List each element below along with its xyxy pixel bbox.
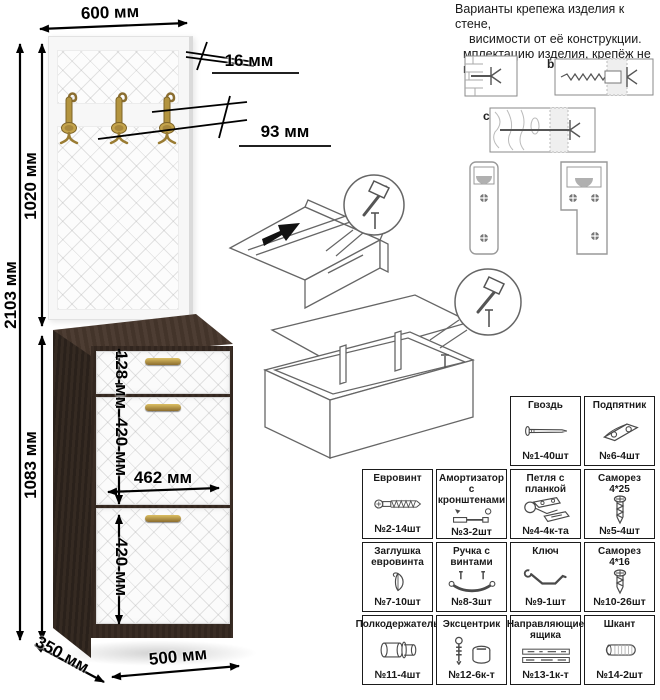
dim-hook-offset: 93 мм — [261, 122, 310, 142]
part-count: №5-4шт — [599, 525, 640, 537]
part-count: №14-2шт — [596, 669, 643, 681]
panel-quilt-lower — [57, 126, 179, 310]
part-name: Евровинт — [373, 473, 421, 484]
mount-option-b: b — [547, 57, 653, 95]
dim-drawer-height: 128 мм — [111, 351, 131, 409]
part-count: №10-26шт — [593, 596, 645, 608]
option-b-label: b — [547, 57, 554, 71]
screw-mark-icon — [480, 194, 488, 202]
part-cell-handle: Ручка с винтами №8-3шт — [436, 542, 507, 612]
drawer-slides-icon — [516, 645, 576, 665]
part-name: Саморез 4*16 — [587, 546, 652, 568]
handle-icon — [442, 569, 502, 595]
note-line: Варианты крепежа изделия к стене, — [455, 2, 659, 32]
part-cell-cam-lock: Эксцентрик №12-6к-т — [436, 615, 507, 685]
part-cell-nail: Гвоздь №1-40шт — [510, 396, 581, 466]
euroscrew-icon — [368, 492, 428, 516]
part-name: Направляющие ящика — [507, 619, 584, 641]
dim-cabinet-height: 1083 мм — [21, 431, 41, 499]
drawer-handle — [145, 358, 181, 365]
foot-plate-icon — [590, 418, 650, 444]
part-name: Заглушка евровинта — [365, 546, 430, 568]
part-count: №6-4шт — [599, 450, 640, 462]
part-count: №9-1шт — [525, 596, 566, 608]
part-cell-gas-strut: Амортизатор с кронштенами №3-2шт — [436, 469, 507, 539]
key-icon — [516, 564, 576, 590]
shelf-support-icon — [368, 637, 428, 663]
screw-mark-icon — [480, 234, 488, 242]
parts-table: Гвоздь №1-40шт Подпятник №6-4шт Евровинт — [362, 396, 655, 685]
mount-option-c: c — [483, 108, 595, 152]
part-count: №4-4к-та — [522, 525, 569, 537]
dim-total-height: 2103 мм — [1, 261, 21, 329]
cabinet-side-panel — [50, 328, 92, 660]
wall-panel — [48, 36, 193, 320]
screw-icon — [603, 495, 637, 525]
wall-mounting-options: b c — [455, 50, 660, 265]
part-count: №7-10шт — [374, 596, 421, 608]
part-cell-foot: Подпятник №6-4шт — [584, 396, 655, 466]
coat-hook-icon — [107, 90, 131, 148]
screw-mark-icon — [569, 194, 577, 202]
part-count: №2-14шт — [374, 523, 421, 535]
part-count: №11-4шт — [374, 669, 420, 681]
part-cell-screw-4x16: Саморез 4*16 №10-26шт — [584, 542, 655, 612]
assembly-instruction-sheet: 600 мм 16 мм 93 мм 2103 мм 1020 мм 1083 … — [0, 0, 660, 700]
keyhole-plate-corner — [561, 162, 607, 254]
part-name: Петля с планкой — [513, 473, 578, 495]
dowel-icon — [590, 639, 650, 661]
lower-door-handle — [145, 515, 181, 522]
part-name: Шкант — [604, 619, 636, 630]
screw-mark-icon — [591, 232, 599, 240]
coat-hook-icon — [155, 90, 179, 148]
part-cell-shelf-support: Полкодержатель №11-4шт — [362, 615, 433, 685]
part-count: №1-40шт — [522, 450, 569, 462]
upper-door-handle — [145, 404, 181, 411]
part-cell-screw-4x25: Саморез 4*25 №5-4шт — [584, 469, 655, 539]
part-count: №13-1к-т — [522, 669, 569, 681]
part-name: Амортизатор с кронштенами — [438, 473, 505, 506]
part-name: Полкодержатель — [356, 619, 440, 630]
dim-upper-door-height: 420 мм — [111, 418, 131, 476]
part-name: Саморез 4*25 — [587, 473, 652, 495]
part-count: №8-3шт — [451, 596, 492, 608]
mount-option-a — [465, 56, 517, 96]
part-cell-cap: Заглушка евровинта №7-10шт — [362, 542, 433, 612]
nail-icon — [516, 419, 576, 443]
part-count: №3-2шт — [451, 526, 492, 538]
part-name: Гвоздь — [528, 400, 563, 411]
part-name: Ключ — [532, 546, 558, 557]
option-c-label: c — [483, 109, 490, 123]
hinge-icon — [516, 495, 576, 525]
part-name: Ручка с винтами — [439, 546, 504, 568]
dim-door-width: 462 мм — [134, 468, 192, 488]
cap-icon — [368, 571, 428, 593]
dim-top-width: 600 мм — [81, 2, 140, 24]
gas-strut-icon — [442, 506, 502, 526]
part-cell-key: Ключ №9-1шт — [510, 542, 581, 612]
part-cell-dowel: Шкант №14-2шт — [584, 615, 655, 685]
note-line: висимости от её конструкции. — [455, 32, 659, 47]
dim-panel-thickness: 16 мм — [225, 51, 274, 71]
part-cell-drawer-slides: Направляющие ящика №13-1к-т — [510, 615, 581, 685]
screw-icon — [605, 569, 635, 595]
coat-hook-icon — [57, 90, 81, 148]
part-count: №12-6к-т — [448, 669, 495, 681]
screw-mark-icon — [591, 194, 599, 202]
keyhole-plate-straight — [470, 162, 498, 254]
cam-lock-icon — [442, 635, 502, 665]
part-name: Эксцентрик — [443, 619, 500, 630]
dim-panel-height: 1020 мм — [21, 152, 41, 220]
dim-lower-door-height: 420 мм — [111, 538, 131, 596]
part-cell-hinge: Петля с планкой №4-4к-та — [510, 469, 581, 539]
part-cell-euroscrew: Евровинт №2-14шт — [362, 469, 433, 539]
part-name: Подпятник — [593, 400, 646, 411]
